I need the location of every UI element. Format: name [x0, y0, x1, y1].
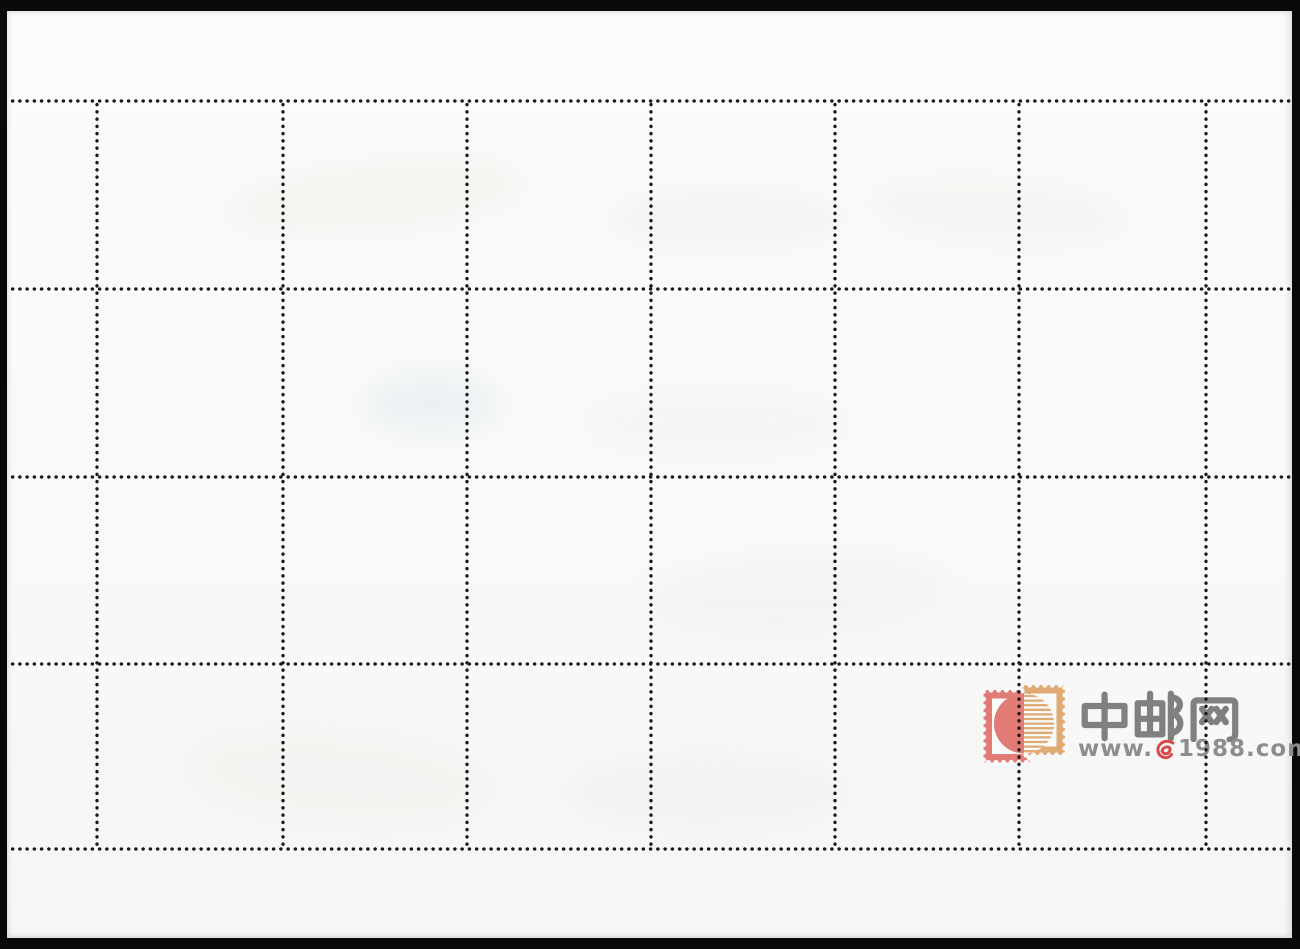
url-suffix: 1988.com — [1178, 736, 1300, 762]
showthrough-ghost — [587, 391, 847, 451]
showthrough-ghost — [224, 146, 530, 247]
showthrough-ghost — [367, 376, 497, 431]
showthrough-ghost — [645, 548, 949, 644]
scan-background: 中邮网 — [0, 0, 1300, 949]
stamp-logo-icon — [982, 684, 1067, 764]
stamp-sheet-paper — [7, 11, 1292, 938]
site-url-text: www. 1988.com — [1078, 736, 1300, 762]
showthrough-ghost — [184, 718, 491, 834]
char-you — [1138, 694, 1181, 738]
e-logo-icon — [1155, 737, 1177, 761]
char-zhong — [1085, 695, 1125, 739]
showthrough-ghost — [865, 167, 1129, 255]
char-wang — [1194, 700, 1236, 739]
showthrough-ghost — [567, 756, 847, 826]
site-name-glyphs — [1078, 689, 1241, 742]
showthrough-ghost — [607, 186, 847, 251]
url-prefix: www. — [1078, 736, 1153, 762]
site-name-text: 中邮网 — [0, 0, 1, 1]
